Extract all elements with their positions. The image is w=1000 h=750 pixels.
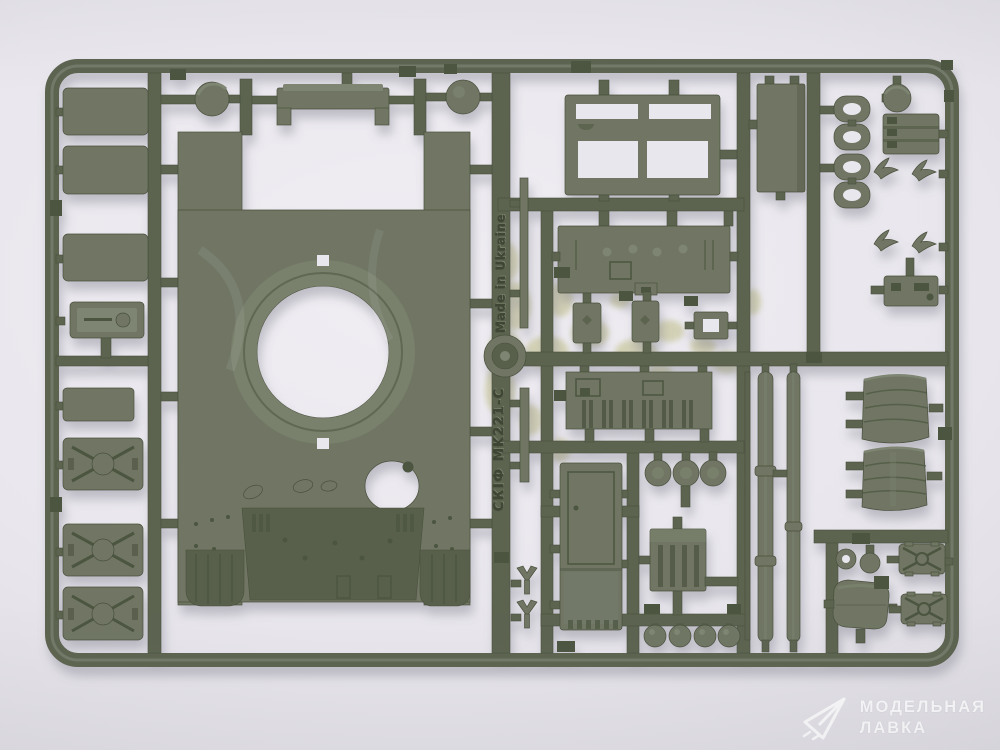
- part-road-disc: [645, 452, 726, 507]
- sprue-marking-made-in: Made in Ukraine: [494, 213, 508, 332]
- part-curved-fender: [846, 375, 952, 510]
- part-louvered-box: [639, 517, 738, 615]
- watermark-line1: МОДЕЛЬНАЯ: [860, 697, 986, 718]
- part-detail-box: [871, 258, 948, 306]
- part-side-skirt: [566, 366, 712, 442]
- part-upper-hull: [161, 132, 492, 606]
- part-dome: [426, 80, 492, 114]
- part-engine-deck: [552, 211, 738, 295]
- part-ribbed-box: [883, 114, 948, 154]
- part-tow-shackle: [820, 96, 870, 208]
- part-idler-wheel: [484, 335, 526, 377]
- sprue-photo: Made in Ukraine MK221-C СКІФ МОДЕЛЬНАЯ Л…: [0, 0, 1000, 750]
- part-mushroom-vent: [882, 76, 911, 112]
- bottom-right-parts: [824, 533, 953, 643]
- sprue-illustration: [0, 0, 1000, 750]
- part-solid-block: [749, 76, 805, 200]
- part-rear-door: [550, 463, 628, 630]
- part-grille-frame: [565, 61, 737, 201]
- part-hatch-box-with-knob: [70, 302, 144, 358]
- part-small-frame: [685, 312, 737, 339]
- part-x-ribbed-panel: [63, 438, 143, 640]
- top-right-parts: [806, 60, 954, 363]
- sprue-marking-brand: СКІФ: [493, 467, 508, 511]
- part-bracket-wing: [874, 158, 948, 253]
- part-beam: [252, 73, 414, 125]
- part-tow-hook: [511, 566, 537, 628]
- part-ball: [644, 624, 740, 647]
- watermark-line2: ЛАВКА: [860, 718, 986, 739]
- watermark-text: МОДЕЛЬНАЯ ЛАВКА: [860, 697, 986, 740]
- top-row-parts: [161, 64, 492, 125]
- middle-parts: [552, 211, 738, 442]
- paper-plane-icon: [798, 694, 850, 742]
- part-gun-barrel-rods: [745, 364, 802, 652]
- sprue-marking-kit-code: MK221-C: [493, 387, 508, 460]
- part-round-cap: [195, 82, 229, 116]
- part-flat-panel: [63, 88, 148, 421]
- watermark: МОДЕЛЬНАЯ ЛАВКА: [798, 694, 986, 742]
